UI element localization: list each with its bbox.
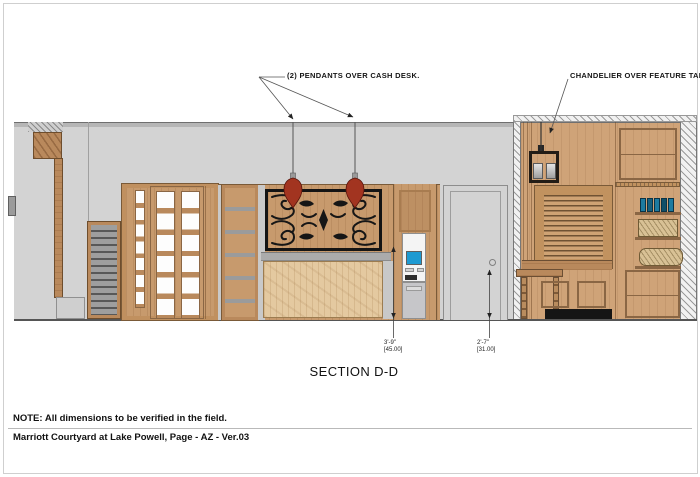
atm-body-slot	[406, 286, 422, 291]
book	[668, 198, 674, 212]
upper-cabinet-rail	[621, 154, 675, 155]
book	[647, 198, 653, 212]
atm-recessed-panel	[399, 190, 431, 232]
door-glass-column-left	[156, 191, 175, 319]
cabinet-black-base	[545, 309, 612, 319]
atm-slot-right	[417, 268, 424, 272]
wood-beam-block	[33, 132, 62, 159]
wood-joint-d	[615, 122, 616, 319]
section-title: SECTION D-D	[274, 364, 434, 379]
cabinet-panel-left	[541, 281, 569, 308]
ceiling-cut-hatch	[513, 115, 697, 122]
beam-cut-hatch	[28, 122, 63, 132]
door-stile-line	[205, 186, 206, 319]
display-shelf-2	[635, 237, 681, 240]
wall-section-cut-hatch	[513, 122, 521, 320]
display-shelf-1	[635, 212, 681, 215]
atm-keypad	[405, 275, 417, 280]
book	[640, 198, 646, 212]
project-text: Marriott Courtyard at Lake Powell, Page …	[13, 432, 249, 443]
cash-desk-counter	[261, 252, 391, 261]
service-door-inner-panel	[450, 191, 501, 320]
wood-post	[54, 158, 63, 298]
display-bolster	[639, 248, 683, 266]
lower-cabinet-door	[625, 270, 680, 318]
post-plinth	[56, 297, 85, 319]
chandelier-callout: CHANDELIER OVER FEATURE TABLE.	[570, 71, 700, 80]
lower-cabinet-rail	[627, 295, 678, 296]
atm-slot-left	[405, 268, 414, 272]
wood-joint-b	[527, 122, 528, 319]
cabinet-panel-right	[577, 281, 606, 308]
door-knob	[489, 259, 496, 266]
slatted-rack	[88, 222, 120, 318]
dim-decimal: [45.00]	[384, 347, 402, 354]
chandelier-shade-left	[533, 163, 543, 179]
note-text: NOTE: All dimensions to be verified in t…	[13, 413, 227, 424]
drawing-sheet: (2) PENDANTS OVER CASH DESK. CHANDELIER …	[0, 0, 700, 477]
dim-feet-inches: 3'-9"	[384, 340, 402, 347]
desk-side-return	[383, 261, 393, 319]
dim-feet-inches: 2'-7"	[477, 340, 495, 347]
display-shelf-3	[635, 266, 681, 269]
dim-label-door-ref: 2'-7" [31.00]	[477, 340, 495, 354]
right-wall-cut-hatch	[680, 122, 697, 320]
atm-screen	[406, 251, 422, 265]
tall-shelf-column	[222, 185, 258, 320]
shelf-trim-band	[615, 182, 680, 187]
dim-decimal: [31.00]	[477, 347, 495, 354]
cash-desk-front	[263, 261, 383, 318]
door-sidelite-glass	[135, 190, 145, 308]
chandelier-shade-right	[546, 163, 556, 179]
dim-label-counter-height: 3'-9" [45.00]	[384, 340, 402, 354]
door-glass-column-right	[181, 191, 200, 319]
ironwork-scroll-pattern	[268, 192, 379, 248]
upper-cabinet-door	[619, 128, 677, 180]
titleblock-divider	[8, 428, 692, 429]
book	[661, 198, 667, 212]
pendants-callout: (2) PENDANTS OVER CASH DESK.	[287, 71, 420, 80]
wall-mounted-fixture	[8, 196, 16, 216]
feature-table-top	[516, 269, 563, 277]
ironwork-panel	[265, 189, 382, 251]
book	[654, 198, 660, 212]
display-box	[638, 219, 678, 237]
table-leg-left	[521, 277, 527, 319]
louvered-feature-panel	[535, 186, 612, 268]
